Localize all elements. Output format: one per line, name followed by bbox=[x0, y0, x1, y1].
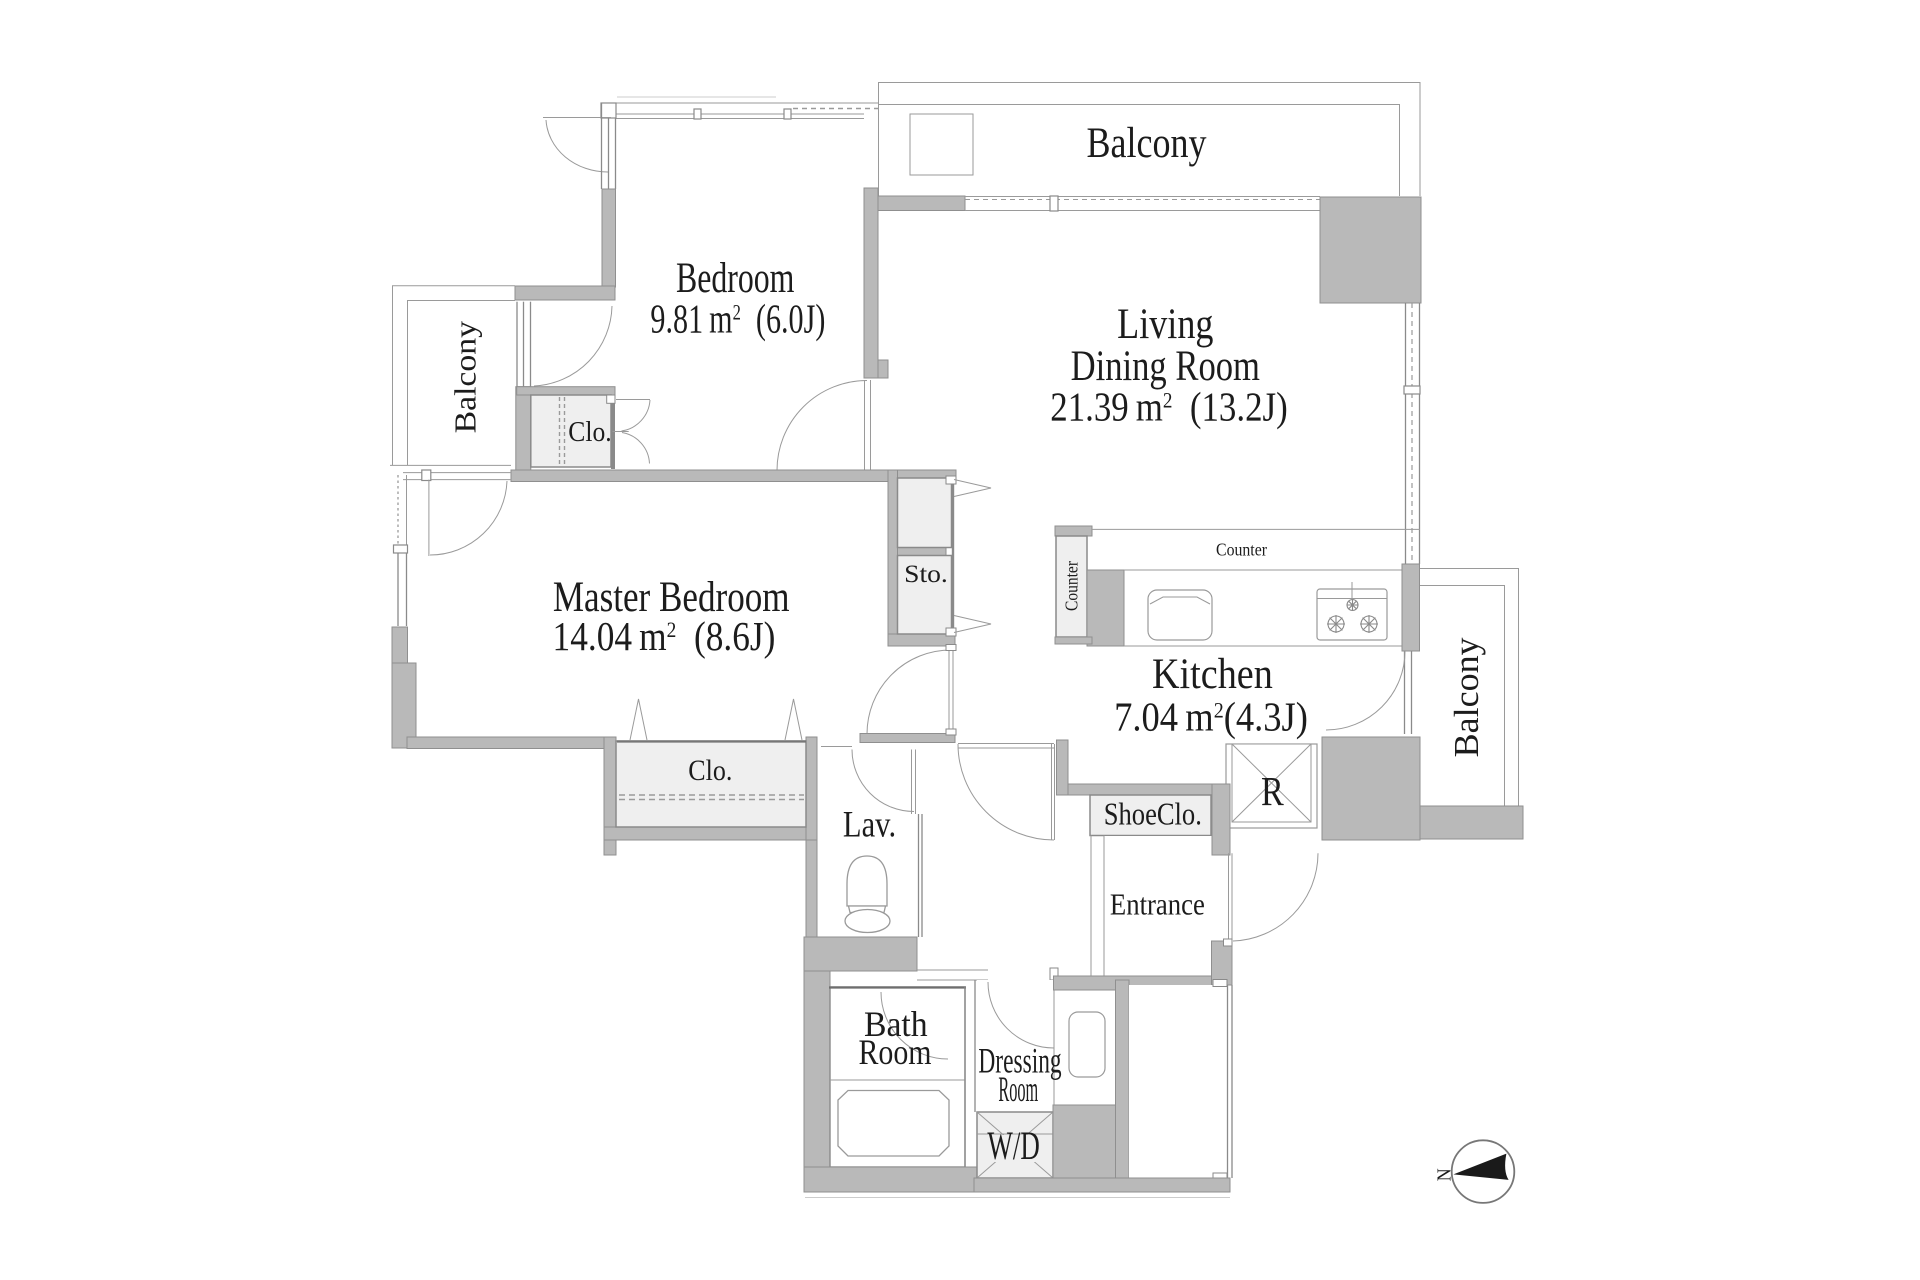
svg-text:Living: Living bbox=[1117, 300, 1213, 348]
svg-text:ShoeClo.: ShoeClo. bbox=[1104, 797, 1202, 832]
svg-text:7.04 m2(4.3J): 7.04 m2(4.3J) bbox=[1114, 694, 1308, 739]
svg-text:Dining Room: Dining Room bbox=[1071, 343, 1260, 390]
svg-text:Counter: Counter bbox=[1216, 540, 1267, 560]
svg-text:W/D: W/D bbox=[987, 1125, 1039, 1168]
svg-text:Lav.: Lav. bbox=[843, 805, 896, 845]
svg-text:Bedroom: Bedroom bbox=[676, 254, 794, 302]
svg-text:Balcony: Balcony bbox=[449, 320, 483, 433]
svg-text:Room: Room bbox=[998, 1070, 1038, 1110]
svg-text:N: N bbox=[1434, 1168, 1456, 1181]
svg-text:Clo.: Clo. bbox=[688, 754, 732, 787]
svg-text:Room: Room bbox=[858, 1034, 931, 1073]
svg-text:Balcony: Balcony bbox=[1446, 637, 1485, 757]
svg-text:Kitchen: Kitchen bbox=[1152, 650, 1273, 698]
svg-text:Clo.: Clo. bbox=[568, 416, 611, 448]
svg-text:14.04 m2 (8.6J): 14.04 m2 (8.6J) bbox=[553, 615, 776, 660]
svg-text:Balcony: Balcony bbox=[1087, 119, 1207, 167]
svg-text:Counter: Counter bbox=[1061, 561, 1081, 611]
svg-text:Sto.: Sto. bbox=[904, 560, 948, 588]
svg-text:Entrance: Entrance bbox=[1110, 888, 1205, 922]
svg-text:R: R bbox=[1261, 769, 1285, 815]
